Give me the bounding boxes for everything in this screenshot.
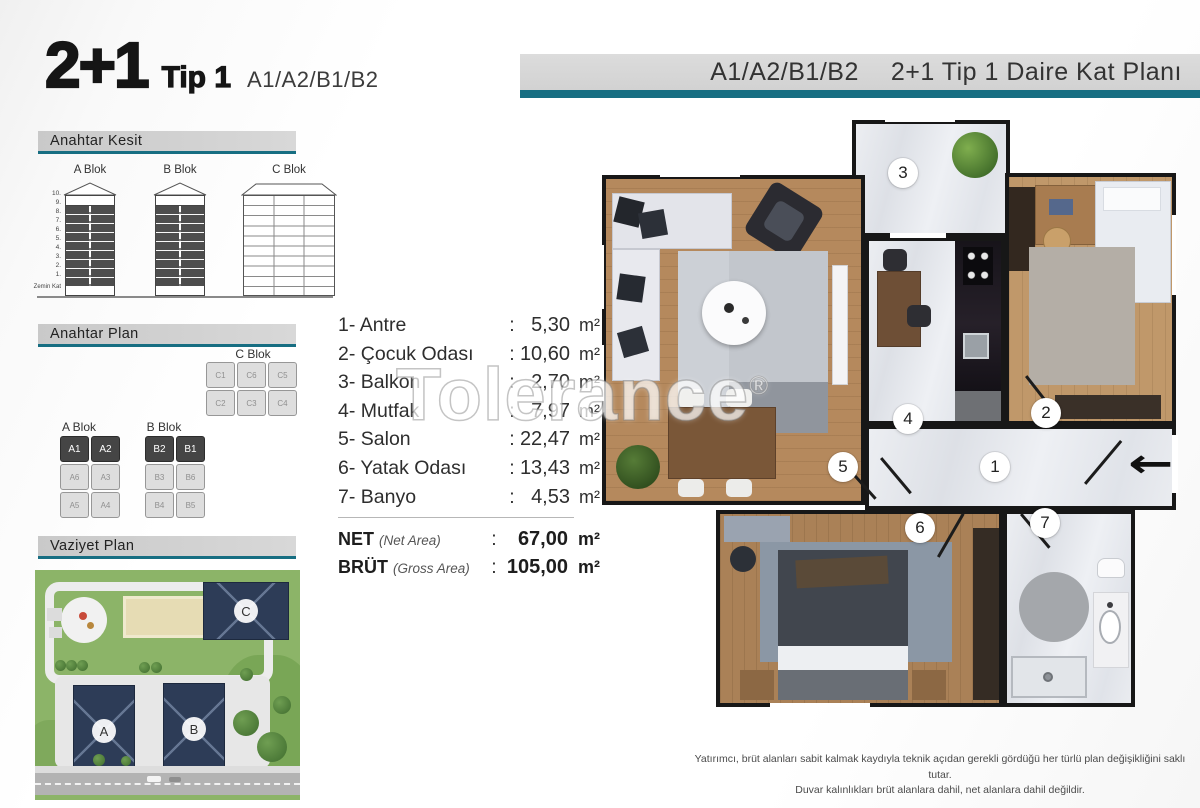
unit-cell: C1 [206, 362, 235, 388]
room-area-value: 13,43 [518, 457, 570, 480]
unit-cell: A6 [60, 464, 89, 490]
tree [55, 660, 66, 671]
section-underline-kesit [38, 151, 296, 154]
window [770, 703, 870, 707]
laptop [1049, 199, 1073, 215]
kitchen-sink [963, 333, 989, 359]
tower-top-floor [66, 196, 114, 206]
bed-foot [778, 670, 908, 700]
colon: : [506, 371, 518, 394]
site-structure [47, 608, 62, 621]
cabinet [724, 516, 790, 542]
tv-console [832, 265, 848, 385]
building-c: C [203, 582, 289, 640]
unit-cell: C5 [268, 362, 297, 388]
room-name: Salon [361, 428, 411, 450]
window [885, 118, 955, 122]
room-number-badge-balcony: 3 [888, 158, 918, 188]
pillow [1103, 187, 1161, 211]
room-living [602, 175, 865, 505]
colon: : [506, 457, 518, 480]
title-units: A1/A2/B1/B2 [247, 67, 378, 93]
kitchen-cabinet [955, 391, 1001, 421]
room-name: Antre [360, 314, 407, 336]
playground-circle [61, 597, 107, 643]
room-name: Mutfak [361, 400, 420, 422]
room-area-value: 2,70 [518, 371, 570, 394]
window [660, 173, 740, 177]
mini-plan-c: C1 C6 C5 C2 C3 C4 [206, 362, 297, 416]
net-area-row: NET (Net Area) : 67,00 m² [338, 528, 600, 556]
tower-divider [179, 196, 181, 205]
unit-cell: B6 [176, 464, 205, 490]
title-type: Tip 1 [162, 61, 231, 95]
floor-label: 8. [35, 207, 61, 216]
window [1172, 215, 1176, 295]
block-c-label: C Blok [247, 164, 331, 176]
block-b-tower [155, 195, 205, 296]
floor-label: 2. [35, 261, 61, 270]
room-name: Yatak Odası [360, 457, 466, 479]
dining-table [668, 407, 776, 479]
title-size: 2+1 [45, 28, 148, 102]
building-a-tag: A [92, 719, 116, 743]
section-underline-plan [38, 344, 296, 347]
brut-label: BRÜT [338, 557, 388, 577]
room-area-value: 4,53 [518, 486, 570, 509]
header-title: 2+1 Tip 1 Daire Kat Planı [891, 58, 1182, 87]
dresser [1055, 395, 1161, 419]
net-area-value: 67,00 [500, 528, 568, 551]
tower-top-floor [156, 196, 204, 206]
site-structure [49, 627, 62, 638]
unit-cell: B5 [176, 492, 205, 518]
room-row-balkon: 3- Balkon : 2,70 m² [338, 371, 600, 400]
block-a-label: A Blok [55, 164, 125, 176]
room-area-list: 1- Antre : 5,30 m² 2- Çocuk Odası : 10,6… [338, 314, 600, 514]
room-master-bedroom [716, 510, 1003, 707]
tower-highlight-floors [66, 206, 114, 286]
room-no: 7- [338, 486, 355, 508]
section-header-anahtar-kesit: Anahtar Kesit [38, 131, 296, 151]
floor-label: 9. [35, 198, 61, 207]
room-name: Banyo [361, 486, 416, 508]
unit-cell: C6 [237, 362, 266, 388]
block-c-tower [243, 195, 335, 296]
block-a-tower [65, 195, 115, 296]
colon: : [506, 400, 518, 423]
window [600, 345, 604, 401]
room-area-unit: m² [570, 315, 600, 336]
tree [240, 668, 253, 681]
shower-drain [1043, 672, 1053, 682]
room-no: 4- [338, 400, 355, 422]
building-b-tag: B [182, 717, 206, 741]
unit-cell: A3 [91, 464, 120, 490]
floor-label: 5. [35, 234, 61, 243]
tree [139, 662, 150, 673]
room-child-bedroom [1005, 173, 1176, 425]
unit-cell-highlight: A2 [91, 436, 120, 462]
room-row-antre: 1- Antre : 5,30 m² [338, 314, 600, 343]
tower-highlight-floors [156, 206, 204, 286]
room-row-salon: 5- Salon : 22,47 m² [338, 428, 600, 457]
room-row-banyo: 7- Banyo : 4,53 m² [338, 486, 600, 515]
building-c-tag: C [234, 599, 258, 623]
unit-cell: A4 [91, 492, 120, 518]
table-decor [742, 317, 749, 324]
balcony-door-opening [890, 233, 946, 238]
unit-cell: B3 [145, 464, 174, 490]
gross-area-unit: m² [568, 557, 600, 578]
pillow [616, 273, 645, 302]
floor-label: 10. [35, 189, 61, 198]
tree [257, 732, 287, 762]
unit-cell: C4 [268, 390, 297, 416]
plant [952, 132, 998, 178]
unit-cell: B4 [145, 492, 174, 518]
room-area-unit: m² [570, 372, 600, 393]
room-row-yatak-odasi: 6- Yatak Odası : 13,43 m² [338, 457, 600, 486]
room-bathroom [1003, 510, 1135, 707]
unit-cell: C3 [237, 390, 266, 416]
floor-label: 4. [35, 243, 61, 252]
table-decor [724, 303, 734, 313]
faucet [1107, 602, 1113, 608]
page-title: 2+1 Tip 1 A1/A2/B1/B2 [45, 28, 379, 102]
kitchen-chair [907, 305, 931, 327]
mini-plan-a: A1 A2 A6 A3 A5 A4 [60, 436, 120, 518]
wardrobe [973, 528, 999, 700]
sports-court [123, 596, 211, 638]
room-area-value: 22,47 [518, 428, 570, 451]
room-no: 2- [338, 343, 355, 365]
tree [233, 710, 259, 736]
gross-area-value: 105,00 [500, 556, 568, 579]
floor-label: 1. [35, 270, 61, 279]
floor-label: 7. [35, 216, 61, 225]
tower-divider [89, 196, 91, 205]
room-kitchen [865, 237, 1005, 425]
tree [93, 754, 105, 766]
net-sublabel: (Net Area) [379, 533, 441, 548]
plant [616, 445, 660, 489]
gross-area-row: BRÜT (Gross Area) : 105,00 m² [338, 556, 600, 584]
net-label: NET [338, 529, 374, 549]
room-balcony [852, 120, 1010, 237]
room-area-unit: m² [570, 487, 600, 508]
tree [77, 660, 88, 671]
list-divider [338, 517, 574, 518]
pillow [638, 209, 668, 239]
coffee-table [702, 281, 766, 345]
net-area-unit: m² [568, 529, 600, 550]
colon: : [488, 528, 500, 551]
ground-floor-label: Zemin Kat [23, 284, 61, 290]
room-number-badge-bathroom: 7 [1030, 508, 1060, 538]
header-accent-bar [520, 90, 1200, 98]
sofa-chaise [612, 249, 660, 381]
tower-divider [179, 206, 181, 286]
totals-block: NET (Net Area) : 67,00 m² BRÜT (Gross Ar… [338, 528, 600, 584]
bedroom-rug [1029, 247, 1135, 385]
mini-a-label: A Blok [47, 420, 111, 434]
room-area-value: 7,97 [518, 400, 570, 423]
tower-ground-floor [66, 286, 114, 295]
pillows [795, 556, 888, 589]
unit-cell-highlight: A1 [60, 436, 89, 462]
colon: : [506, 428, 518, 451]
room-name: Çocuk Odası [361, 343, 474, 365]
room-number-badge-hall: 1 [980, 452, 1010, 482]
unit-cell: A5 [60, 492, 89, 518]
road-center-line [35, 783, 300, 785]
mini-b-label: B Blok [132, 420, 196, 434]
floor-plan: 1 2 3 4 5 6 7 ← [600, 115, 1190, 765]
room-area-value: 10,60 [518, 343, 570, 366]
room-no: 5- [338, 428, 355, 450]
section-header-vaziyet-plan: Vaziyet Plan [38, 536, 296, 556]
section-header-anahtar-plan: Anahtar Plan [38, 324, 296, 344]
kitchen-chair [883, 249, 907, 271]
sidewalk [35, 766, 300, 773]
floor-label: 6. [35, 225, 61, 234]
window [600, 245, 604, 309]
bed-sheet [778, 646, 908, 670]
room-area-unit: m² [570, 401, 600, 422]
playground-equipment [87, 622, 94, 629]
block-b-label: B Blok [145, 164, 215, 176]
building-b: B [163, 683, 225, 775]
colon: : [506, 486, 518, 509]
dining-chair [678, 479, 704, 497]
block-b-roof [153, 182, 207, 196]
room-name: Balkon [361, 371, 421, 393]
mini-c-label: C Blok [208, 347, 298, 361]
header-band: A1/A2/B1/B2 2+1 Tip 1 Daire Kat Planı [520, 54, 1200, 90]
room-area-unit: m² [570, 429, 600, 450]
key-section-diagram: 10. 9. 8. 7. 6. 5. 4. 3. 2. 1. Zemin Kat… [35, 158, 335, 300]
car [147, 776, 161, 782]
sink [1099, 610, 1121, 644]
dining-chair [726, 479, 752, 497]
bath-rug [1019, 572, 1089, 642]
toilet [1097, 558, 1125, 578]
room-number-badge-child-bedroom: 2 [1031, 398, 1061, 428]
room-number-badge-master-bedroom: 6 [905, 513, 935, 543]
disclaimer-line-2: Duvar kalınlıkları brüt alanlara dahil, … [690, 783, 1190, 799]
mini-plan-b: B2 B1 B3 B6 B4 B5 [145, 436, 205, 518]
room-area-unit: m² [570, 458, 600, 479]
block-a-roof [63, 182, 117, 196]
tree [151, 662, 162, 673]
colon: : [506, 343, 518, 366]
section-underline-vaziyet [38, 556, 296, 559]
room-area-unit: m² [570, 344, 600, 365]
ground-line [37, 296, 333, 298]
room-row-mutfak: 4- Mutfak : 7,97 m² [338, 400, 600, 429]
unit-cell: C2 [206, 390, 235, 416]
colon: : [506, 314, 518, 337]
site-plan: C A B [35, 570, 300, 800]
nightstand [740, 670, 774, 700]
room-number-badge-kitchen: 4 [893, 404, 923, 434]
room-no: 1- [338, 314, 355, 336]
tree [66, 660, 77, 671]
stool [730, 546, 756, 572]
brut-sublabel: (Gross Area) [393, 561, 470, 576]
floor-number-list: 10. 9. 8. 7. 6. 5. 4. 3. 2. 1. [35, 189, 61, 279]
block-c-roof [241, 182, 337, 196]
room-row-cocuk-odasi: 2- Çocuk Odası : 10,60 m² [338, 343, 600, 372]
room-no: 6- [338, 457, 355, 479]
tower-ground-floor [156, 286, 204, 295]
dining-chair [726, 389, 752, 407]
tree [273, 696, 291, 714]
room-no: 3- [338, 371, 355, 393]
cooktop [963, 247, 993, 285]
unit-cell-highlight: B1 [176, 436, 205, 462]
nightstand [912, 670, 946, 700]
tree [121, 756, 131, 766]
header-units: A1/A2/B1/B2 [710, 58, 859, 87]
car [169, 777, 181, 782]
entry-arrow-icon: ← [1128, 441, 1173, 487]
unit-cell-highlight: B2 [145, 436, 174, 462]
dining-chair [678, 389, 704, 407]
playground-equipment [79, 612, 87, 620]
room-number-badge-living: 5 [828, 452, 858, 482]
floor-label: 3. [35, 252, 61, 261]
colon: : [488, 556, 500, 579]
room-area-value: 5,30 [518, 314, 570, 337]
tower-divider [89, 206, 91, 286]
